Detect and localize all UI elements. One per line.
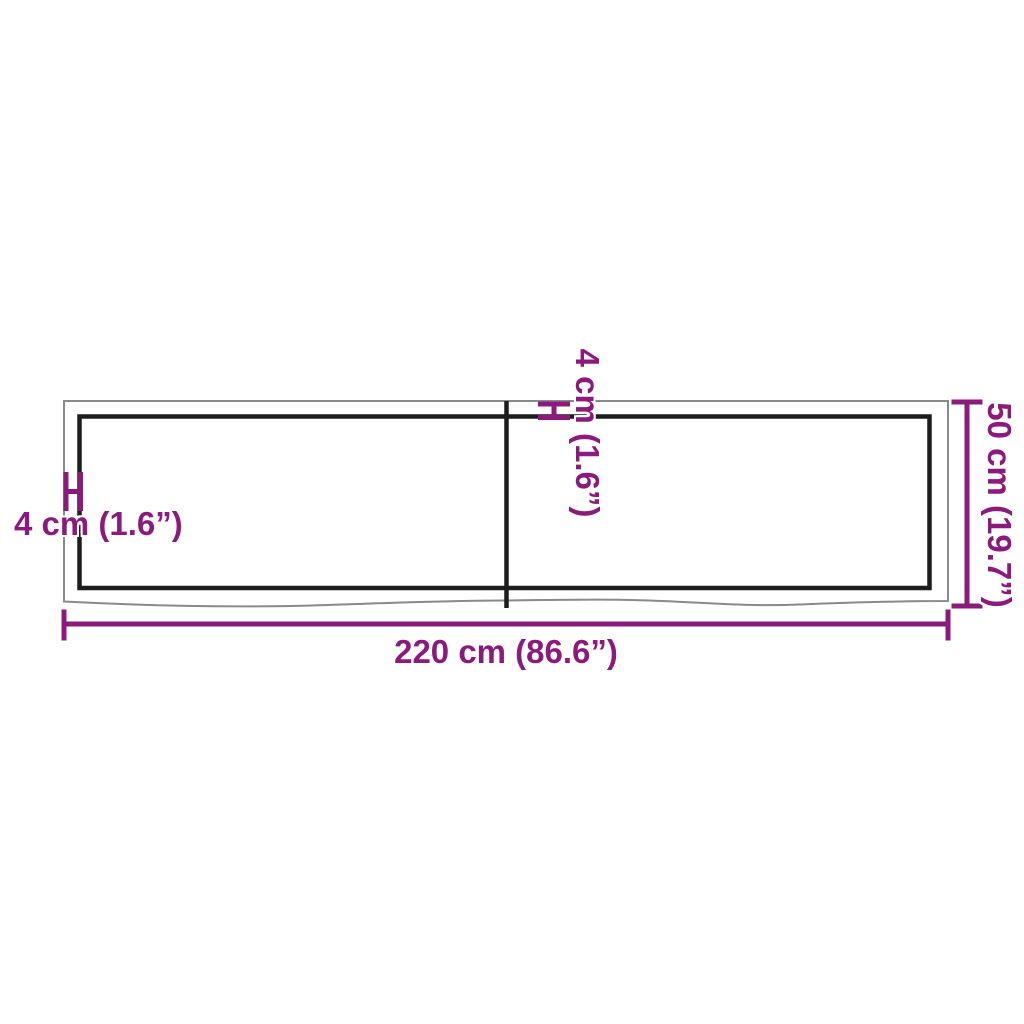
width-dimension-label: 220 cm (86.6”) bbox=[64, 634, 948, 670]
height-dimension-line bbox=[952, 402, 983, 606]
dimension-diagram: 220 cm (86.6”) 50 cm (19.7”) 4 cm (1.6”)… bbox=[0, 0, 1024, 1024]
thickness-label-top: 4 cm (1.6”) bbox=[569, 349, 605, 518]
thickness-label-left: 4 cm (1.6”) bbox=[14, 506, 183, 542]
height-dimension-label: 50 cm (19.7”) bbox=[981, 402, 1017, 607]
